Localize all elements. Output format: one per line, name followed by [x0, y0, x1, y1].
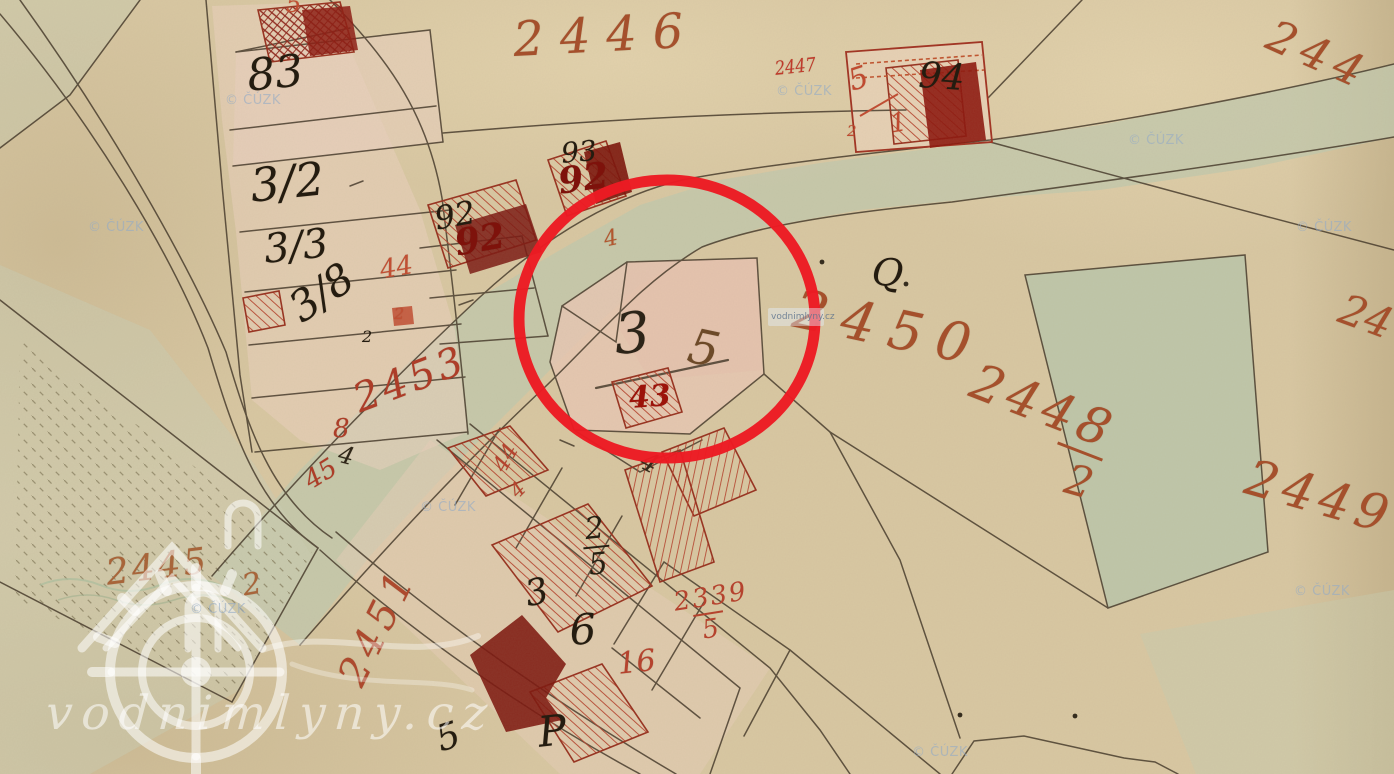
cuzk-watermark: © ČÚZK	[1128, 133, 1184, 148]
cuzk-watermark: © ČÚZK	[1296, 220, 1352, 235]
cuzk-watermark: © ČÚZK	[190, 602, 246, 617]
cuzk-watermark: © ČÚZK	[225, 93, 281, 108]
cuzk-watermark: © ČÚZK	[776, 84, 832, 99]
cadastral-map-scan: 2446 2447 244 2450 2448 2 2449 24 2445 2…	[0, 0, 1394, 774]
cuzk-watermark: © ČÚZK	[88, 220, 144, 235]
mini-watermark-chip: vodnimlyny.cz	[768, 308, 824, 326]
watermark-texts: vodnimlyny.cz vodnimlyny.cz © ČÚZK © ČÚZ…	[0, 0, 1394, 774]
cuzk-watermark: © ČÚZK	[1294, 584, 1350, 599]
cuzk-watermark: © ČÚZK	[420, 500, 476, 515]
mini-watermark-text: vodnimlyny.cz	[771, 312, 835, 322]
site-watermark: vodnimlyny.cz	[44, 686, 498, 741]
cuzk-watermark: © ČÚZK	[912, 745, 968, 760]
